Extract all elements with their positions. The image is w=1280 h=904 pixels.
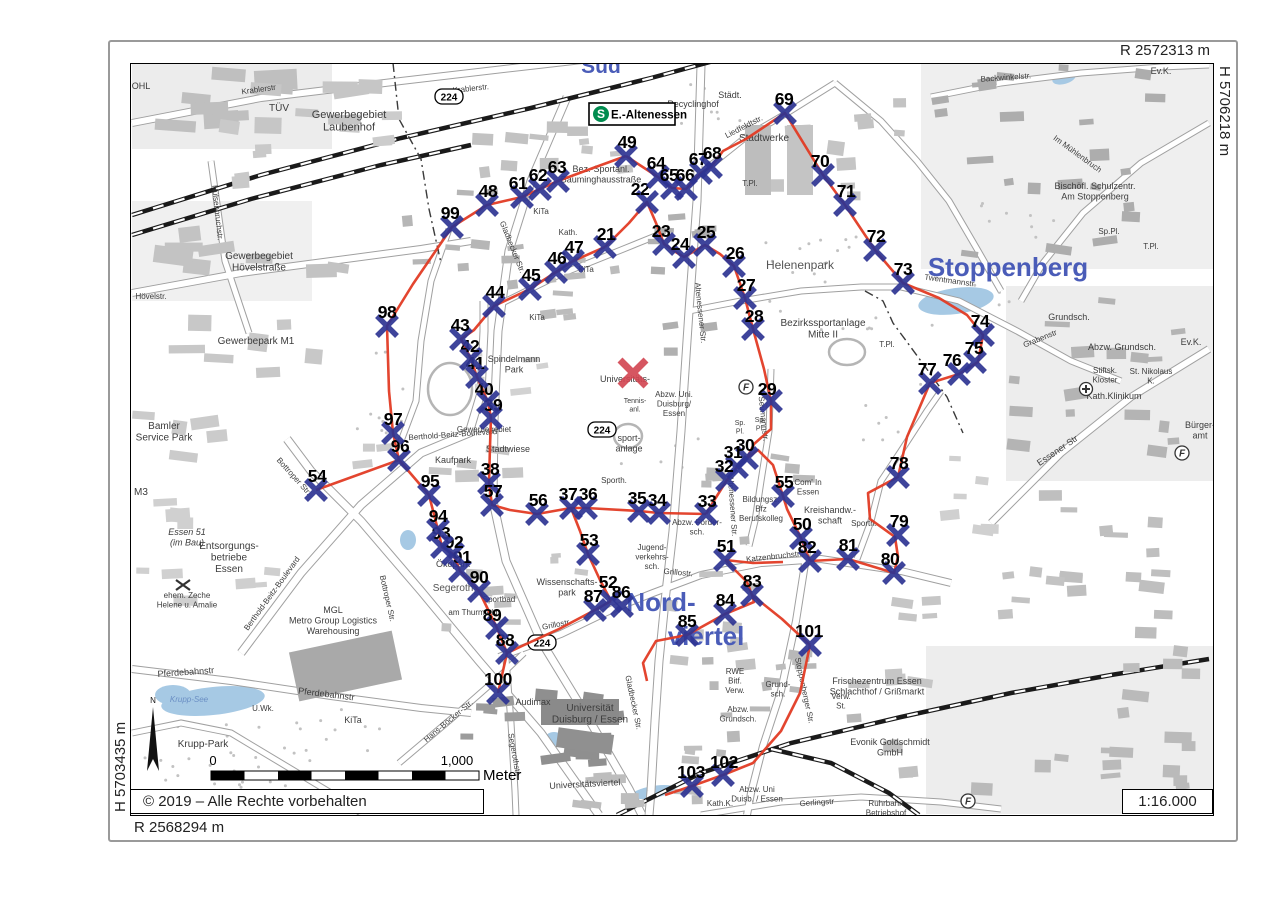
svg-text:61: 61 <box>509 173 528 193</box>
place-label: Audimax <box>515 697 551 707</box>
svg-text:82: 82 <box>798 537 817 557</box>
place-label: Grundsch. <box>1048 312 1090 322</box>
place-label: Ev.K. <box>1181 337 1202 347</box>
svg-text:77: 77 <box>918 359 936 379</box>
topographic-map-canvas: OHLTÜVGewerbegebietLaubenhofGewerbegebie… <box>131 64 1213 815</box>
svg-text:32: 32 <box>715 456 734 476</box>
place-label: Sp.Pl. <box>735 420 746 436</box>
svg-text:F: F <box>743 383 750 394</box>
place-label: M3 <box>134 487 148 498</box>
svg-text:S: S <box>597 107 605 121</box>
place-label: TÜV <box>269 102 289 114</box>
svg-text:97: 97 <box>384 409 402 429</box>
place-label: Bischöfl. Schulzentr.Am Stoppenberg <box>1054 181 1135 202</box>
svg-text:84: 84 <box>716 590 735 610</box>
svg-text:49: 49 <box>618 132 637 152</box>
place-label: sport-anlage <box>615 433 642 454</box>
place-label: RWEBitf.Verw. <box>725 667 745 695</box>
place-label: KiTa <box>529 313 545 322</box>
svg-text:25: 25 <box>697 222 716 242</box>
svg-text:68: 68 <box>703 143 722 163</box>
place-label: Süd <box>581 64 621 78</box>
place-label: Stiftsk.Kloster <box>1093 366 1118 385</box>
svg-text:55: 55 <box>775 472 794 492</box>
svg-text:29: 29 <box>758 379 777 399</box>
svg-text:89: 89 <box>483 605 502 625</box>
svg-text:35: 35 <box>628 488 647 508</box>
copyright-box: © 2019 – Alle Rechte vorbehalten <box>130 789 484 814</box>
svg-text:43: 43 <box>451 315 470 335</box>
place-label: ehem. ZecheHelene u. Amalie <box>157 591 218 610</box>
svg-text:81: 81 <box>839 535 858 555</box>
place-label: GewerbegebietHövelstraße <box>225 251 293 274</box>
place-label: Kath. <box>559 228 578 237</box>
svg-text:103: 103 <box>677 762 705 782</box>
place-label: Krupp-Park <box>178 739 230 750</box>
svg-text:56: 56 <box>529 490 548 510</box>
svg-text:50: 50 <box>793 514 812 534</box>
map-viewport: OHLTÜVGewerbegebietLaubenhofGewerbegebie… <box>130 63 1214 816</box>
svg-text:27: 27 <box>737 275 755 295</box>
place-label: Helenenpark <box>766 258 835 272</box>
svg-text:38: 38 <box>481 459 500 479</box>
coord-label-left: H 5703435 m <box>112 722 129 812</box>
station-sign: SE.-Altenessen <box>589 103 687 125</box>
svg-text:86: 86 <box>612 582 631 602</box>
svg-text:33: 33 <box>698 491 717 511</box>
svg-text:53: 53 <box>580 530 599 550</box>
place-label: T.Pl. <box>879 340 895 349</box>
place-label: KiTa <box>344 715 362 725</box>
place-label: Sp.Pl. <box>1098 227 1119 236</box>
map-scale-box: 1:16.000 <box>1122 789 1213 814</box>
place-label: Abzw. Grundsch. <box>1088 342 1156 352</box>
svg-text:69: 69 <box>775 89 794 109</box>
svg-text:21: 21 <box>597 224 616 244</box>
svg-text:98: 98 <box>378 302 397 322</box>
place-label: Krupp-See <box>170 695 209 704</box>
place-label: Sporth. <box>601 476 627 485</box>
svg-text:224: 224 <box>594 426 611 437</box>
place-label: Com' InEssen <box>794 478 821 497</box>
svg-text:23: 23 <box>652 221 671 241</box>
svg-text:51: 51 <box>717 536 736 556</box>
place-label: Kaufpark <box>435 455 472 465</box>
place-label: U.Wk. <box>252 704 274 713</box>
svg-text:62: 62 <box>529 165 548 185</box>
place-label: RuhrbahnBetriebshof <box>866 799 907 815</box>
svg-text:63: 63 <box>548 157 567 177</box>
place-label: Städt. <box>718 90 742 100</box>
svg-text:83: 83 <box>743 571 762 591</box>
scalebar-zero-label: 0 <box>209 753 216 768</box>
svg-text:100: 100 <box>484 669 512 689</box>
place-label: Hövelstr. <box>135 292 166 301</box>
svg-text:73: 73 <box>894 259 913 279</box>
place-label: OHL <box>132 81 151 91</box>
svg-text:79: 79 <box>890 511 909 531</box>
svg-text:70: 70 <box>811 151 830 171</box>
svg-text:94: 94 <box>429 506 448 526</box>
place-label: Gewerbepark M1 <box>218 336 295 347</box>
svg-text:74: 74 <box>971 311 990 331</box>
svg-text:N: N <box>150 696 156 705</box>
svg-text:37: 37 <box>559 484 577 504</box>
svg-text:26: 26 <box>726 243 745 263</box>
svg-text:48: 48 <box>479 181 498 201</box>
svg-text:76: 76 <box>943 350 962 370</box>
coord-label-bottom-left: R 2568294 m <box>134 819 224 836</box>
place-label: T.Pl. <box>742 179 758 188</box>
svg-text:99: 99 <box>441 203 460 223</box>
svg-text:24: 24 <box>671 234 690 254</box>
place-label: Stadtwiese <box>486 444 530 454</box>
map-sheet: R 2572313 m H 5706218 m H 5703435 m R 25… <box>0 0 1280 904</box>
svg-text:44: 44 <box>486 282 505 302</box>
svg-text:78: 78 <box>890 453 909 473</box>
svg-text:101: 101 <box>795 621 823 641</box>
svg-text:85: 85 <box>678 611 697 631</box>
place-label: Segeroth <box>433 583 474 594</box>
coord-label-right: H 5706218 m <box>1216 66 1233 156</box>
svg-text:72: 72 <box>867 226 886 246</box>
place-label: KiTa <box>533 207 549 216</box>
svg-text:45: 45 <box>522 265 541 285</box>
svg-text:22: 22 <box>631 179 650 199</box>
place-label: Kath.K. <box>707 799 733 808</box>
station-sign-label: E.-Altenessen <box>611 110 687 122</box>
svg-text:47: 47 <box>565 237 583 257</box>
svg-text:F: F <box>965 797 972 808</box>
svg-text:90: 90 <box>470 567 489 587</box>
scalebar-end-label: 1,000 <box>441 753 474 768</box>
coord-label-top-right: R 2572313 m <box>990 42 1210 59</box>
svg-text:F: F <box>1179 449 1186 460</box>
svg-text:57: 57 <box>484 481 502 501</box>
svg-text:80: 80 <box>881 549 900 569</box>
svg-text:34: 34 <box>648 490 667 510</box>
place-label: Ev.K. <box>1151 66 1172 76</box>
place-label: T.Pl. <box>1143 242 1159 251</box>
svg-text:224: 224 <box>441 93 458 104</box>
scalebar-unit-label: Meter <box>483 767 521 784</box>
svg-text:95: 95 <box>421 471 440 491</box>
svg-text:28: 28 <box>745 306 764 326</box>
svg-text:75: 75 <box>965 338 984 358</box>
svg-text:54: 54 <box>308 466 327 486</box>
place-label: Kath.Klinikum <box>1086 391 1141 401</box>
svg-text:102: 102 <box>710 752 738 772</box>
svg-text:71: 71 <box>837 181 856 201</box>
svg-text:87: 87 <box>584 586 602 606</box>
